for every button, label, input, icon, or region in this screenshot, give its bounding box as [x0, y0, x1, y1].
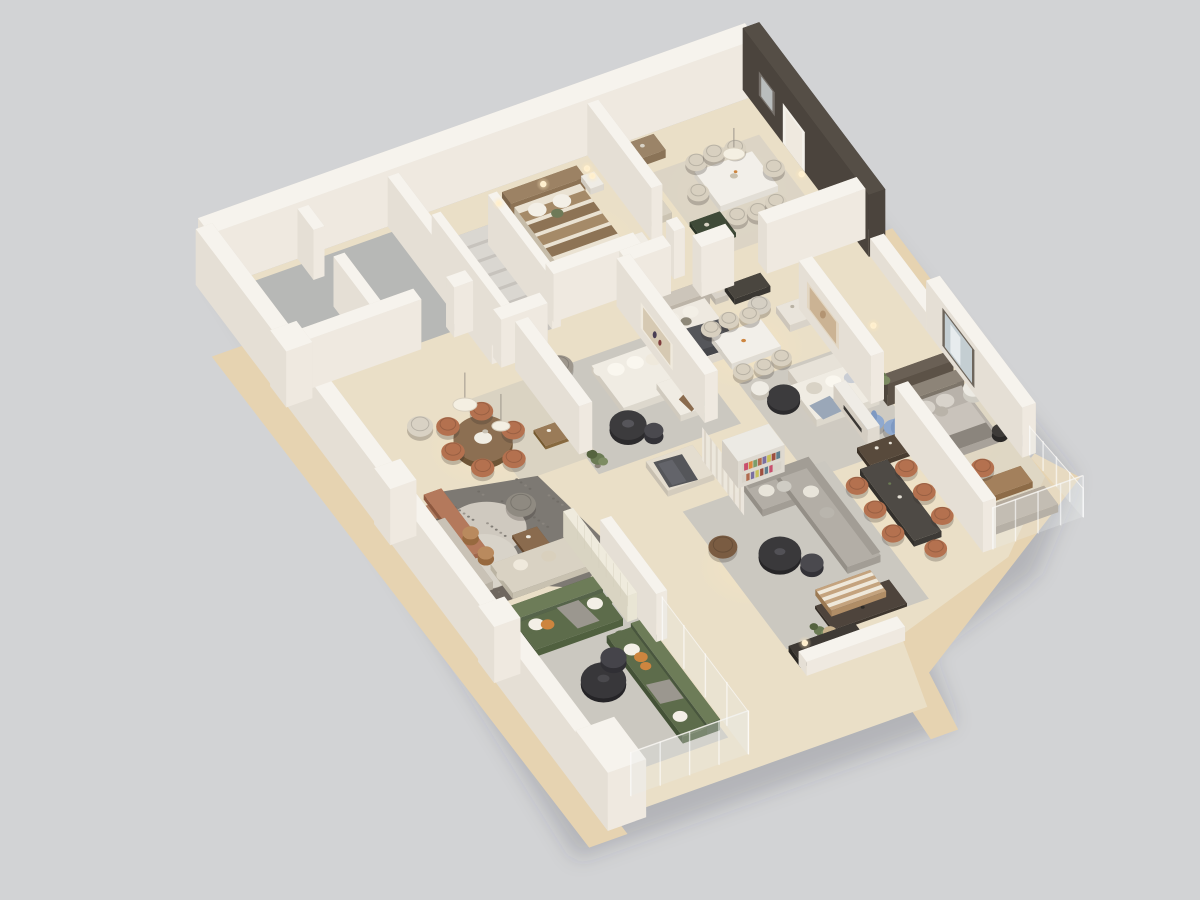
- apartment-floorplan: [0, 0, 1200, 900]
- floorplan-render-canvas: [0, 0, 1200, 900]
